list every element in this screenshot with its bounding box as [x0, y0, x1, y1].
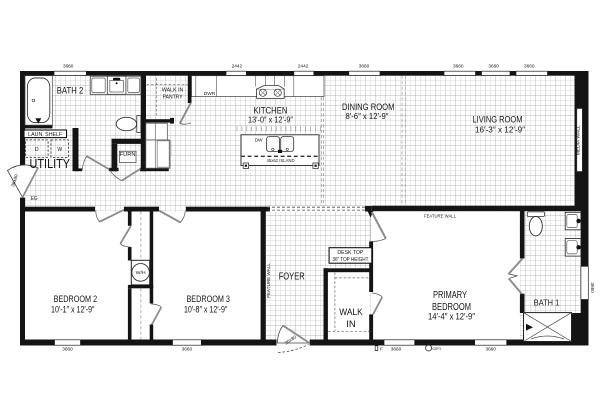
svg-text:10′-1″ x 12′-9″: 10′-1″ x 12′-9″	[51, 304, 95, 314]
svg-text:3660: 3660	[63, 64, 74, 70]
svg-text:DW: DW	[255, 137, 263, 142]
svg-text:3660: 3660	[453, 64, 464, 70]
svg-text:16′-3″ x 12′-9″: 16′-3″ x 12′-9″	[475, 125, 525, 134]
svg-text:BEDROOM 3: BEDROOM 3	[186, 293, 230, 304]
svg-text:3660: 3660	[524, 64, 535, 70]
svg-text:BEDROOM 2: BEDROOM 2	[54, 293, 98, 304]
svg-text:PANTRY: PANTRY	[163, 95, 183, 101]
svg-text:W/H: W/H	[136, 270, 146, 275]
svg-text:MEDIA WALL: MEDIA WALL	[576, 125, 581, 156]
svg-text:3660: 3660	[62, 347, 73, 353]
svg-text:PRIMARY: PRIMARY	[433, 290, 467, 301]
svg-text:2442: 2442	[232, 64, 243, 70]
svg-text:3660: 3660	[359, 64, 370, 70]
svg-text:D: D	[35, 147, 39, 153]
svg-text:3660: 3660	[391, 347, 402, 353]
svg-text:3660: 3660	[182, 347, 193, 353]
svg-text:EG: EG	[31, 196, 38, 202]
svg-text:LIVING ROOM: LIVING ROOM	[473, 115, 523, 126]
svg-text:UTILITY: UTILITY	[30, 156, 71, 171]
svg-text:3660: 3660	[485, 347, 496, 353]
svg-text:F: F	[380, 346, 383, 351]
svg-text:36″ TOP HEIGHT: 36″ TOP HEIGHT	[332, 257, 369, 263]
svg-text:FEATURE WALL: FEATURE WALL	[266, 262, 271, 298]
svg-text:14′-4″ x 12′-9″: 14′-4″ x 12′-9″	[428, 311, 475, 321]
svg-text:WALK: WALK	[339, 307, 363, 318]
svg-text:DWR: DWR	[204, 91, 216, 96]
svg-text:BATH 2: BATH 2	[57, 86, 84, 97]
svg-text:2442: 2442	[298, 64, 309, 70]
svg-text:WALK IN: WALK IN	[162, 88, 184, 94]
svg-text:3660: 3660	[589, 282, 595, 293]
svg-text:8′-6″ x 12′-9″: 8′-6″ x 12′-9″	[346, 112, 389, 121]
svg-text:KITCHEN: KITCHEN	[254, 105, 288, 115]
svg-text:FURN: FURN	[120, 152, 136, 158]
svg-text:3660: 3660	[488, 64, 499, 70]
svg-text:BATH 1: BATH 1	[534, 297, 560, 307]
svg-text:DESK TOP: DESK TOP	[337, 250, 364, 256]
svg-text:10′-8″ x 12′-9″: 10′-8″ x 12′-9″	[184, 304, 228, 314]
svg-text:LAUN. SHELF: LAUN. SHELF	[28, 132, 62, 138]
svg-text:13′-0″ x 12′-9″: 13′-0″ x 12′-9″	[248, 115, 293, 124]
svg-text:45x62 ISLAND: 45x62 ISLAND	[267, 158, 295, 163]
svg-text:FEATURE WALL: FEATURE WALL	[424, 214, 457, 219]
svg-text:GFI: GFI	[432, 346, 441, 351]
svg-text:FOYER: FOYER	[279, 272, 305, 283]
svg-text:W: W	[57, 147, 62, 153]
svg-text:IN: IN	[346, 319, 356, 330]
